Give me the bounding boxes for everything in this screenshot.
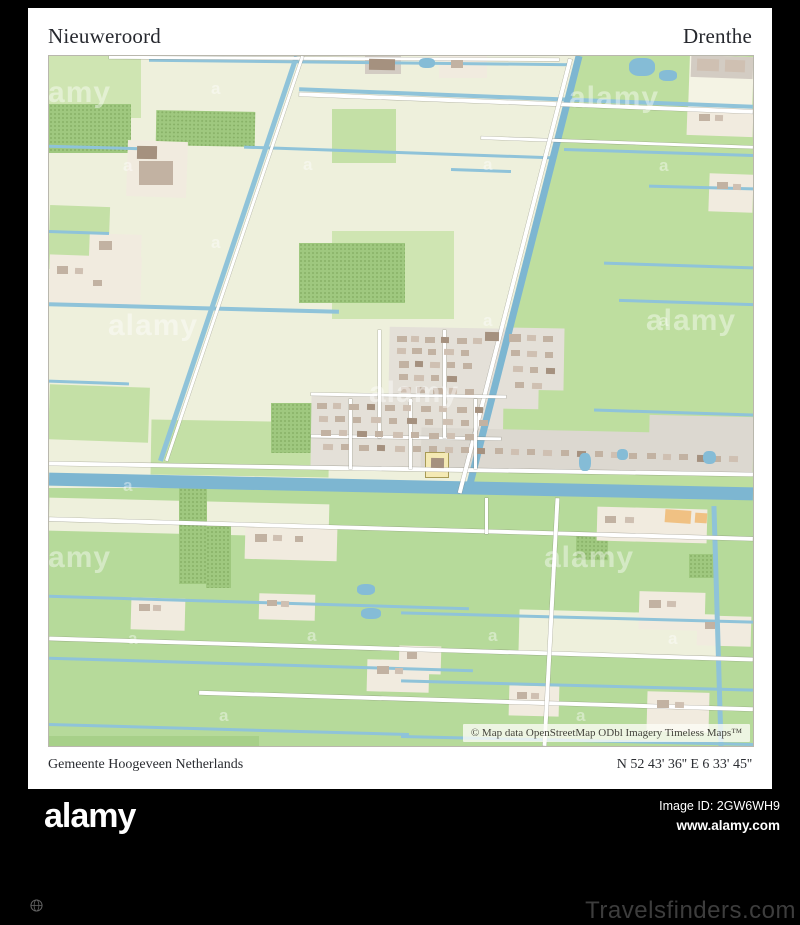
- map-forest: [271, 403, 313, 453]
- map-building: [532, 383, 542, 389]
- map-building: [407, 418, 417, 424]
- map-building: [649, 600, 661, 608]
- map-building: [705, 622, 715, 629]
- map-title-place: Nieuweroord: [48, 24, 161, 49]
- map-forest: [299, 243, 405, 303]
- alamy-watermark-small: a: [123, 156, 133, 176]
- map-building: [444, 349, 454, 355]
- map-building: [715, 115, 723, 121]
- alamy-watermark: alamy: [569, 81, 659, 115]
- map-building: [393, 432, 403, 438]
- map-block: [648, 415, 753, 475]
- map-building: [679, 454, 688, 460]
- alamy-watermark-small: a: [483, 155, 493, 175]
- caption-municipality: Gemeente Hoogeveen Netherlands: [48, 757, 243, 773]
- map-building: [461, 350, 469, 356]
- map-building: [545, 352, 553, 358]
- map-building: [605, 516, 616, 523]
- map-block: [639, 591, 706, 631]
- map-building: [341, 444, 349, 450]
- map-building: [411, 432, 419, 438]
- map-forest: [689, 554, 715, 578]
- map-building: [397, 348, 406, 354]
- map-building: [353, 417, 361, 423]
- alamy-watermark-small: a: [303, 155, 313, 175]
- map-building: [511, 350, 520, 356]
- map-building: [527, 335, 536, 341]
- map-building: [377, 666, 389, 674]
- map-forest: [206, 526, 231, 588]
- map-building: [99, 241, 112, 250]
- map-building: [695, 513, 708, 524]
- map-building: [431, 458, 444, 468]
- alamy-watermark-small: a: [123, 476, 133, 496]
- map-field: [332, 109, 396, 163]
- image-id: Image ID: 2GW6WH9: [659, 799, 780, 813]
- alamy-watermark-small: a: [488, 626, 498, 646]
- map-pond: [357, 584, 375, 595]
- map-building: [473, 338, 482, 344]
- map-building: [515, 382, 524, 388]
- map-building: [399, 361, 409, 368]
- alamy-bar: alamy Image ID: 2GW6WH9 www.alamy.com: [0, 789, 800, 849]
- map-building: [717, 182, 728, 189]
- map-building: [359, 445, 369, 451]
- map-building: [428, 349, 436, 355]
- map-building: [273, 535, 282, 541]
- map-building: [429, 446, 437, 452]
- map-pond: [579, 453, 591, 471]
- map-building: [447, 433, 455, 439]
- map-building: [335, 416, 345, 422]
- map-building: [543, 336, 553, 342]
- map-block: [131, 597, 186, 630]
- map-building: [139, 161, 173, 185]
- map-building: [477, 448, 485, 454]
- map-pond: [617, 449, 628, 460]
- map-building: [729, 456, 738, 462]
- alamy-watermark-small: a: [659, 311, 669, 331]
- alamy-watermark: alamy: [48, 76, 111, 110]
- map-building: [281, 601, 289, 607]
- alamy-watermark-small: a: [668, 629, 678, 649]
- map-field: [49, 736, 259, 746]
- alamy-url: www.alamy.com: [659, 818, 780, 833]
- map-building: [629, 453, 637, 459]
- map-block: [245, 527, 338, 561]
- map-building: [663, 454, 671, 460]
- map-building: [625, 517, 634, 523]
- map-building: [430, 362, 440, 368]
- map-canvas: © Map data OpenStreetMap ODbl Imagery Ti…: [48, 55, 754, 747]
- alamy-watermark-small: a: [659, 156, 669, 176]
- map-building: [457, 338, 467, 344]
- map-building: [657, 700, 669, 708]
- map-water: [244, 146, 554, 160]
- map-building: [412, 348, 422, 354]
- map-title-region: Drenthe: [683, 24, 752, 49]
- map-building: [357, 431, 367, 437]
- map-building: [530, 367, 538, 373]
- map-building: [349, 404, 359, 410]
- map-building: [425, 337, 435, 343]
- map-building: [546, 368, 555, 374]
- map-building: [445, 447, 453, 453]
- map-building: [317, 403, 327, 409]
- alamy-watermark-small: a: [307, 626, 317, 646]
- map-building: [667, 601, 676, 607]
- alamy-watermark: alamy: [48, 541, 111, 575]
- map-building: [699, 114, 710, 121]
- alamy-watermark-small: a: [211, 79, 221, 99]
- map-building: [461, 420, 469, 426]
- map-building: [75, 268, 83, 274]
- map-building: [451, 60, 463, 68]
- page: Nieuweroord Drenthe © Map data OpenStree…: [0, 0, 800, 925]
- map-building: [513, 366, 523, 372]
- map-building: [665, 509, 692, 524]
- map-building: [543, 450, 552, 456]
- map-building: [295, 536, 303, 542]
- map-building: [485, 332, 499, 341]
- map-building: [463, 363, 472, 369]
- alamy-watermark: alamy: [108, 309, 198, 343]
- map-building: [389, 418, 397, 424]
- map-building: [511, 449, 519, 455]
- map-building: [395, 668, 403, 674]
- map-building: [527, 449, 535, 455]
- map-building: [465, 434, 474, 440]
- map-building: [531, 693, 539, 699]
- map-building: [153, 605, 161, 611]
- map-building: [509, 334, 521, 342]
- alamy-watermark: alamy: [544, 541, 634, 575]
- map-building: [415, 361, 423, 367]
- map-building: [461, 447, 469, 453]
- map-building: [527, 351, 537, 357]
- map-pond: [659, 70, 677, 81]
- caption-coordinates: N 52 43' 36'' E 6 33' 45'': [617, 757, 752, 773]
- photo-card: Nieuweroord Drenthe © Map data OpenStree…: [28, 8, 772, 789]
- map-building: [425, 419, 433, 425]
- map-forest: [179, 484, 207, 584]
- map-road: [485, 498, 488, 534]
- map-building: [443, 419, 453, 425]
- map-building: [517, 692, 527, 699]
- map-building: [93, 280, 102, 286]
- alamy-watermark-small: a: [211, 233, 221, 253]
- map-building: [371, 417, 381, 423]
- map-building: [561, 450, 569, 456]
- alamy-watermark-small: a: [483, 311, 493, 331]
- map-building: [395, 446, 405, 452]
- map-building: [697, 59, 719, 72]
- map-pond: [629, 58, 655, 76]
- alamy-watermark-small: a: [576, 706, 586, 726]
- map-building: [725, 60, 745, 73]
- map-pond: [361, 608, 381, 619]
- map-building: [57, 266, 68, 274]
- alamy-logo: alamy: [44, 797, 135, 836]
- alamy-watermark-small: a: [128, 629, 138, 649]
- map-building: [465, 389, 474, 395]
- map-building: [333, 403, 341, 409]
- map-water: [451, 168, 511, 173]
- map-building: [429, 433, 439, 439]
- map-building: [595, 451, 603, 457]
- map-building: [733, 184, 741, 190]
- map-pond: [419, 58, 435, 68]
- map-building: [321, 430, 331, 436]
- map-building: [323, 444, 333, 450]
- map-building: [647, 453, 656, 459]
- alamy-watermark-small: a: [219, 706, 229, 726]
- map-building: [397, 336, 407, 342]
- map-building: [479, 420, 488, 426]
- map-attribution: © Map data OpenStreetMap ODbl Imagery Ti…: [463, 724, 750, 742]
- globe-icon: [30, 899, 43, 912]
- map-building: [377, 445, 385, 451]
- alamy-watermark: alamy: [369, 376, 459, 410]
- map-building: [319, 416, 328, 422]
- map-building: [411, 336, 419, 342]
- map-block: [708, 173, 753, 213]
- map-building: [339, 430, 347, 436]
- alamy-bar-right: Image ID: 2GW6WH9 www.alamy.com: [659, 799, 780, 833]
- map-building: [675, 702, 684, 708]
- map-building: [139, 604, 150, 611]
- map-field: [48, 384, 150, 442]
- map-building: [375, 431, 383, 437]
- map-building: [369, 59, 395, 70]
- map-building: [475, 407, 483, 413]
- map-building: [447, 362, 455, 368]
- map-building: [267, 600, 277, 606]
- map-building: [441, 337, 449, 343]
- travelsfinders-watermark: Travelsfinders.com: [585, 897, 796, 925]
- map-building: [407, 652, 417, 659]
- map-building: [137, 146, 157, 159]
- map-building: [413, 446, 421, 452]
- map-building: [255, 534, 267, 542]
- map-pond: [703, 451, 716, 464]
- map-building: [495, 448, 503, 454]
